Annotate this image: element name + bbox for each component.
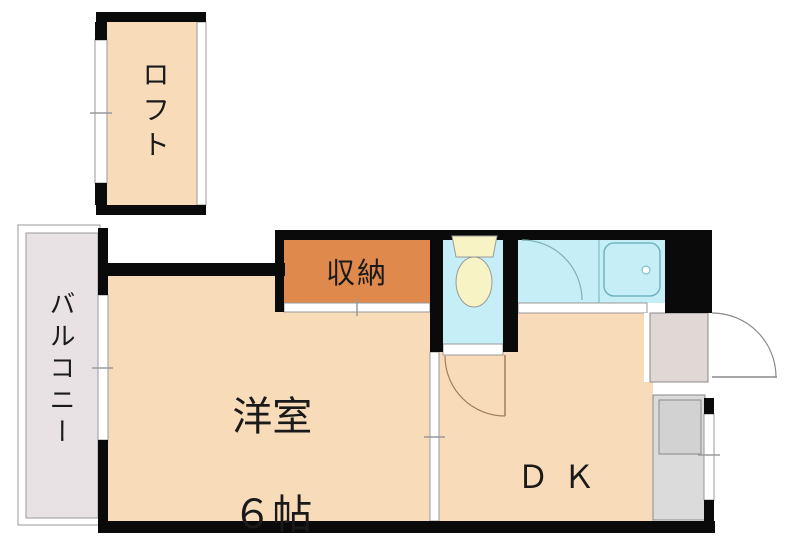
west-wall-lower [98, 440, 108, 533]
bathtub [604, 243, 660, 296]
entry-wall-post [704, 398, 714, 414]
loft-floor [107, 22, 197, 205]
loft-wall-top [96, 12, 206, 22]
bathtub-drain [642, 266, 650, 274]
dk-floor-right [518, 313, 653, 521]
floor-plan: ロフト バルコニー 収納 洋室 ６帖 ＤＫ 4.5帖 [0, 0, 800, 547]
toilet-door-threshold [443, 344, 503, 355]
toilet-tank [452, 236, 497, 257]
kitchen-sink [659, 400, 701, 454]
kitchen-window [704, 414, 714, 500]
entry-step [644, 313, 650, 382]
loft-wall-left-lower [95, 183, 107, 205]
dk-floor-left [439, 352, 518, 521]
toilet-wall-right [503, 232, 518, 352]
corner-wall-block [665, 230, 712, 313]
loft-window [95, 40, 107, 183]
west-wall-upper [98, 228, 108, 295]
closet-wall-left [275, 232, 284, 312]
loft-wall-bottom [96, 205, 206, 215]
bath-threshold [518, 303, 647, 313]
entry-floor [650, 313, 708, 382]
toilet-wall-left [430, 232, 443, 352]
floor-plan-drawing [0, 0, 800, 547]
entrance-door-swing-arc [712, 313, 776, 377]
loft-open-edge [197, 22, 206, 205]
toilet-bowl [456, 257, 492, 307]
loft-wall-left-upper [95, 22, 107, 40]
western-room-wall-top [98, 263, 285, 276]
south-wall [98, 521, 715, 533]
closet-floor [284, 240, 430, 303]
western-room-floor [108, 276, 430, 521]
balcony-floor [26, 233, 98, 518]
